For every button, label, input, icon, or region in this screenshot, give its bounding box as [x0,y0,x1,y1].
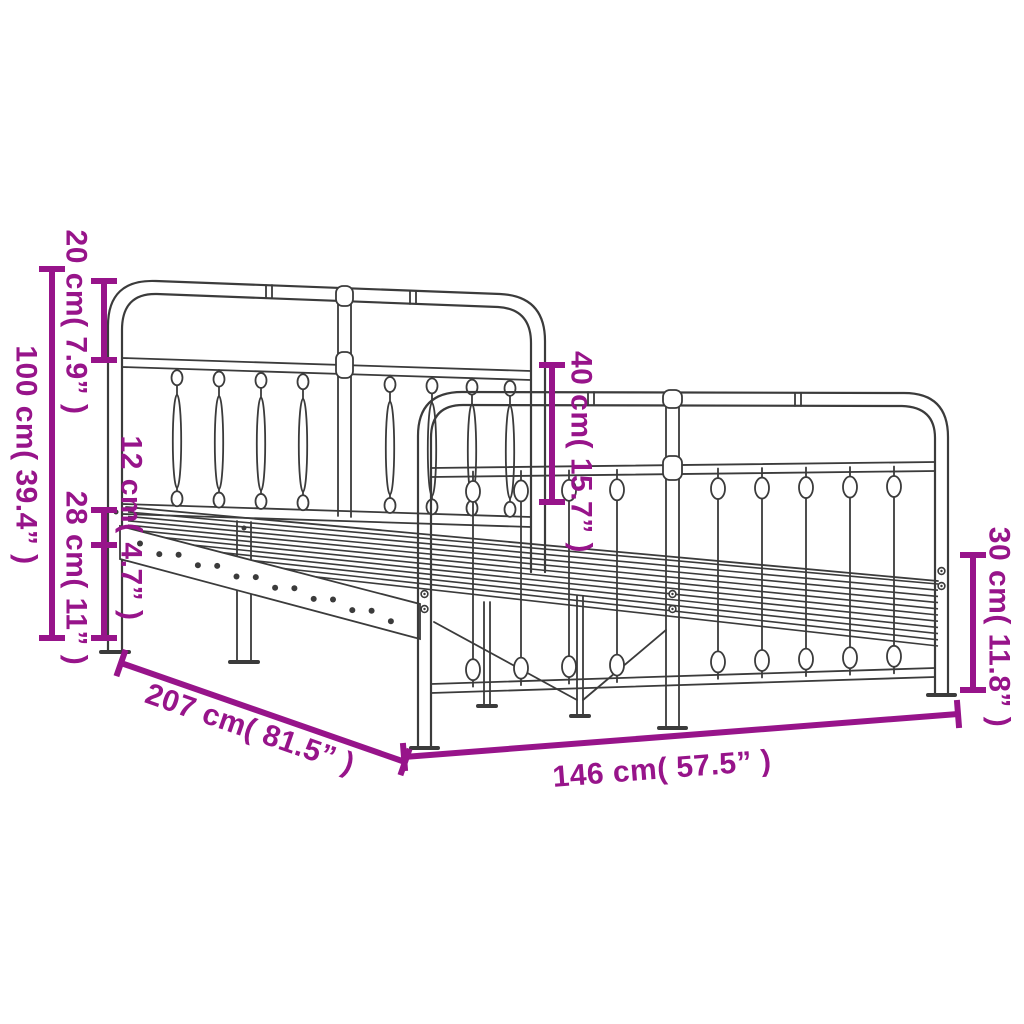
rail-hole [156,551,162,557]
headboard-center-post [338,303,351,517]
dim-12cm-28cm: 12 cm( 4.7” ) 28 cm( 11” ) [60,436,148,666]
dim-line-40cm [539,365,565,502]
rail-hole [253,574,259,580]
bolt-center [671,593,673,595]
rail-hole [234,574,240,580]
dim-146cm: 146 cm( 57.5” ) [403,700,959,794]
bolt-center [423,593,425,595]
diagram-canvas: 100 cm( 39.4” ) 20 cm( 7.9” ) 12 cm( 4.7… [0,0,1024,1024]
spindle-knob [711,651,725,672]
spindle-finial [298,495,309,510]
spindle-knob [514,658,528,679]
dim-line-12cm-28cm [91,510,117,638]
rail-hole [349,607,355,613]
spindle-knob [799,649,813,670]
footboard [411,390,955,748]
support-leg-2 [577,596,583,716]
rail-hole [214,563,220,569]
dim-label-146cm: 146 cm( 57.5” ) [551,744,772,794]
spindle-baluster [215,396,223,489]
rail-hole [369,608,375,614]
spindle-finial [214,493,225,508]
dim-label-12cm: 12 cm( 4.7” ) [115,436,148,621]
spindle-baluster [257,397,265,490]
rail-hole [388,618,394,624]
dim-207cm: 207 cm( 81.5” ) [116,650,409,781]
spindle-knob [799,477,813,498]
headboard-post-sleeve-top [336,286,353,306]
spindle-finial [256,494,267,509]
footboard-bottom-rail [431,668,935,693]
headboard-post-sleeve-mid [336,352,353,378]
dim-line-30cm [960,555,986,690]
spindle-baluster [173,395,181,488]
bed-frame-dimension-diagram: 100 cm( 39.4” ) 20 cm( 7.9” ) 12 cm( 4.7… [0,0,1024,1024]
dim-label-30cm: 30 cm( 11.8” ) [983,527,1016,727]
dim-label-100cm: 100 cm( 39.4” ) [10,345,43,564]
bolt-center [940,585,942,587]
spindle-finial [214,372,225,387]
dim-label-207cm: 207 cm( 81.5” ) [141,677,359,780]
spindle-finial [427,378,438,393]
support-feet [478,706,589,716]
spindle-knob [755,478,769,499]
spindle-knob [562,656,576,677]
rail-hole [195,562,201,568]
spindle-knob [887,476,901,497]
footboard-rail-connectors [588,392,801,406]
rail-hole [330,597,336,603]
rail-hole [272,585,278,591]
spindle-knob [887,646,901,667]
footboard-outer-frame [418,392,948,748]
dim-label-28cm: 28 cm( 11” ) [60,491,93,665]
rail-hole [291,585,297,591]
rail-hole [311,596,317,602]
footboard-post-sleeve-top [663,390,682,408]
spindle-finial [505,381,516,396]
spindle-finial [505,502,516,517]
spindle-finial [256,373,267,388]
spindle-knob [466,659,480,680]
spindle-knob [843,477,857,498]
spindle-baluster [506,405,514,498]
dim-30cm: 30 cm( 11.8” ) [960,527,1016,727]
dim-40cm: 40 cm( 15.7” ) [539,351,598,553]
bolt-center [671,608,673,610]
spindle-knob [610,479,624,500]
spindle-knob [514,480,528,501]
rail-hole [176,552,182,558]
spindle-knob [711,478,725,499]
footboard-post-sleeve-mid [663,456,682,480]
dim-100cm: 100 cm( 39.4” ) [10,269,66,638]
dim-label-20cm: 20 cm( 7.9” ) [60,230,93,415]
spindle-finial [385,377,396,392]
spindle-finial [385,498,396,513]
spindle-finial [467,501,478,516]
spindle-knob [610,655,624,676]
spindle-finial [172,491,183,506]
dim-line-20cm [91,281,117,360]
spindle-baluster [299,399,307,492]
spindle-baluster [386,402,394,495]
bolt-center [423,608,425,610]
bolt-center [940,570,942,572]
spindle-knob [843,647,857,668]
spindle-finial [172,370,183,385]
spindle-knob [755,650,769,671]
spindle-knob [466,481,480,502]
support-legs [434,596,666,716]
spindle-finial [298,374,309,389]
dim-label-40cm: 40 cm( 15.7” ) [565,351,598,553]
